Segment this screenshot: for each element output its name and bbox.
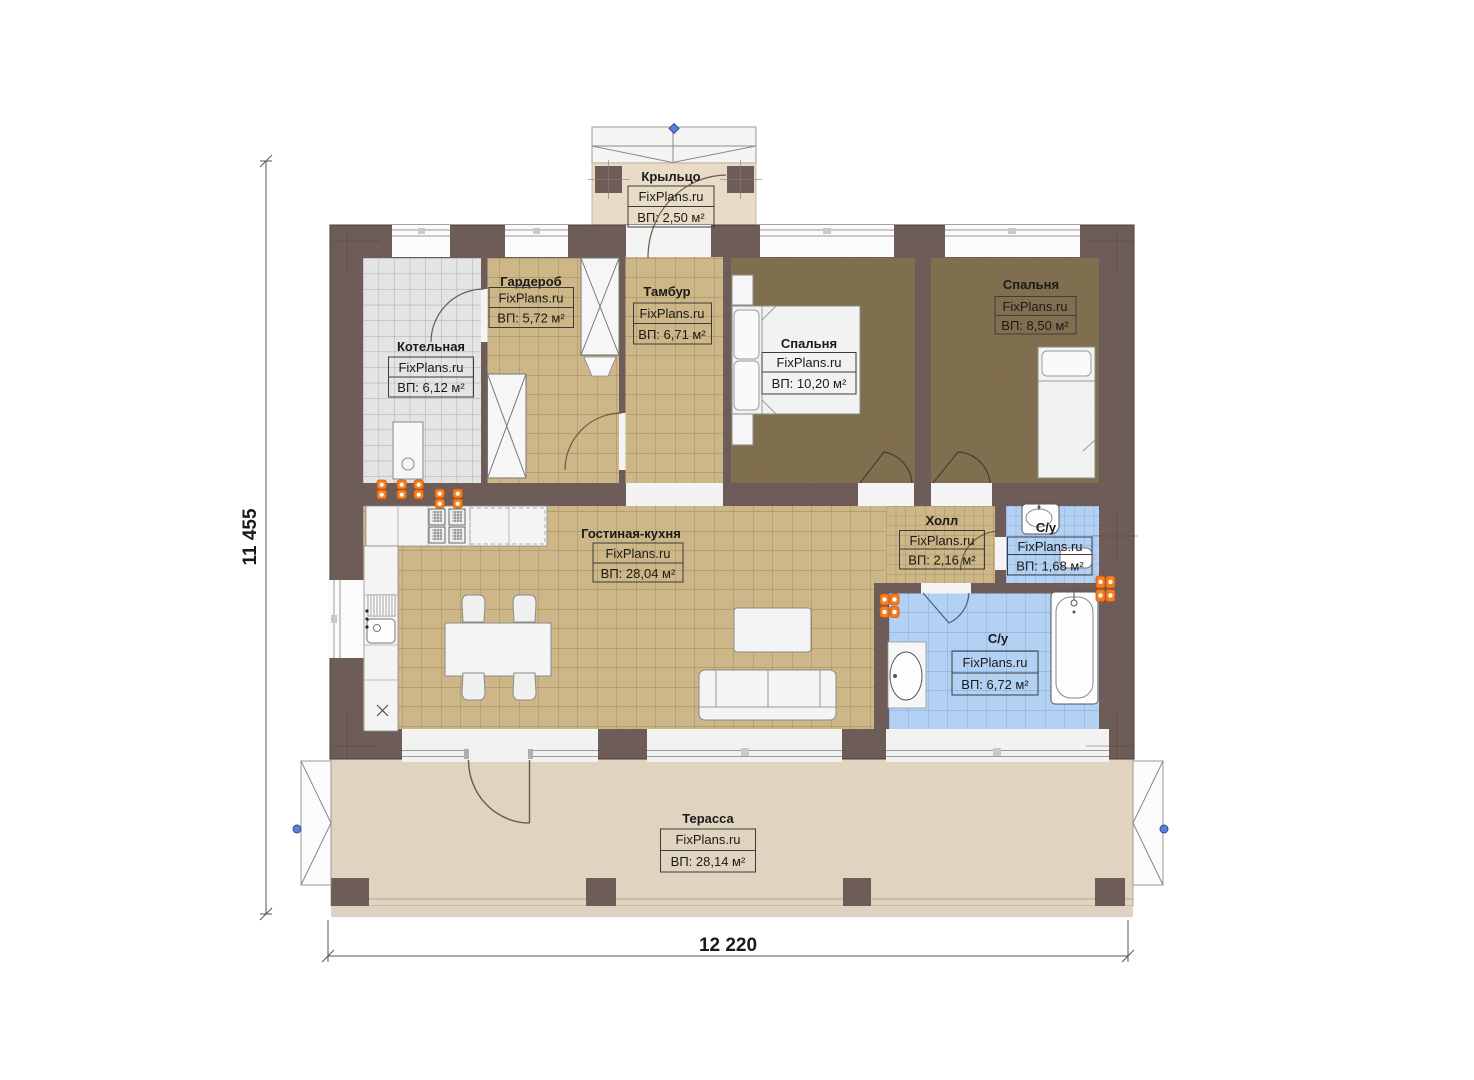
svg-text:FixPlans.ru: FixPlans.ru bbox=[638, 189, 703, 204]
svg-text:FixPlans.ru: FixPlans.ru bbox=[909, 533, 974, 548]
svg-text:Крыльцо: Крыльцо bbox=[641, 169, 700, 184]
svg-text:ВП: 1,68 м²: ВП: 1,68 м² bbox=[1016, 559, 1084, 574]
svg-text:Котельная: Котельная bbox=[397, 339, 465, 354]
svg-text:ВП: 5,72 м²: ВП: 5,72 м² bbox=[497, 311, 565, 326]
svg-text:ВП: 6,71 м²: ВП: 6,71 м² bbox=[638, 327, 706, 342]
svg-text:FixPlans.ru: FixPlans.ru bbox=[776, 355, 841, 370]
svg-text:Спальня: Спальня bbox=[1003, 277, 1059, 292]
svg-text:С/у: С/у bbox=[1036, 520, 1057, 535]
svg-text:12 220: 12 220 bbox=[699, 935, 757, 956]
svg-text:FixPlans.ru: FixPlans.ru bbox=[605, 546, 670, 561]
svg-text:С/у: С/у bbox=[988, 631, 1009, 646]
svg-text:Тамбур: Тамбур bbox=[643, 284, 690, 299]
svg-text:FixPlans.ru: FixPlans.ru bbox=[675, 832, 740, 847]
svg-text:FixPlans.ru: FixPlans.ru bbox=[639, 306, 704, 321]
svg-text:Терасса: Терасса bbox=[682, 811, 734, 826]
svg-text:FixPlans.ru: FixPlans.ru bbox=[398, 360, 463, 375]
svg-text:ВП: 28,04 м²: ВП: 28,04 м² bbox=[601, 566, 676, 581]
svg-text:FixPlans.ru: FixPlans.ru bbox=[962, 655, 1027, 670]
svg-text:ВП: 2,50 м²: ВП: 2,50 м² bbox=[637, 210, 705, 225]
svg-text:Спальня: Спальня bbox=[781, 336, 837, 351]
svg-text:FixPlans.ru: FixPlans.ru bbox=[1017, 539, 1082, 554]
svg-text:FixPlans.ru: FixPlans.ru bbox=[498, 291, 563, 306]
svg-text:Гостиная-кухня: Гостиная-кухня bbox=[581, 526, 681, 541]
svg-text:Холл: Холл bbox=[926, 513, 959, 528]
svg-text:Гардероб: Гардероб bbox=[500, 274, 561, 289]
svg-text:ВП: 6,12 м²: ВП: 6,12 м² bbox=[397, 380, 465, 395]
svg-text:11 455: 11 455 bbox=[240, 508, 261, 565]
svg-text:ВП: 6,72 м²: ВП: 6,72 м² bbox=[961, 677, 1029, 692]
svg-text:ВП: 28,14 м²: ВП: 28,14 м² bbox=[671, 854, 746, 869]
svg-text:FixPlans.ru: FixPlans.ru bbox=[1002, 299, 1067, 314]
svg-text:ВП: 8,50 м²: ВП: 8,50 м² bbox=[1001, 318, 1069, 333]
svg-text:ВП: 10,20 м²: ВП: 10,20 м² bbox=[772, 376, 847, 391]
svg-text:ВП: 2,16 м²: ВП: 2,16 м² bbox=[908, 553, 976, 568]
